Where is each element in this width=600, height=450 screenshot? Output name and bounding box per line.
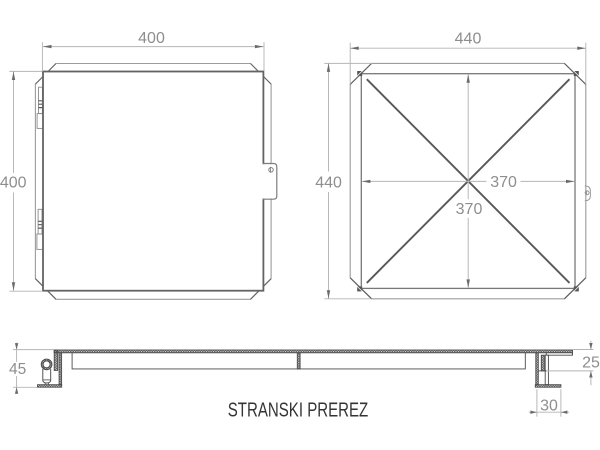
svg-text:400: 400 — [138, 30, 165, 47]
svg-text:30: 30 — [540, 397, 558, 414]
svg-text:440: 440 — [455, 31, 482, 48]
svg-text:STRANSKI PREREZ: STRANSKI PREREZ — [228, 400, 369, 422]
svg-text:440: 440 — [315, 175, 342, 192]
svg-text:370: 370 — [490, 174, 517, 191]
svg-text:45: 45 — [9, 361, 26, 378]
svg-text:370: 370 — [456, 201, 483, 218]
svg-text:25: 25 — [582, 354, 600, 371]
svg-text:400: 400 — [0, 175, 27, 192]
